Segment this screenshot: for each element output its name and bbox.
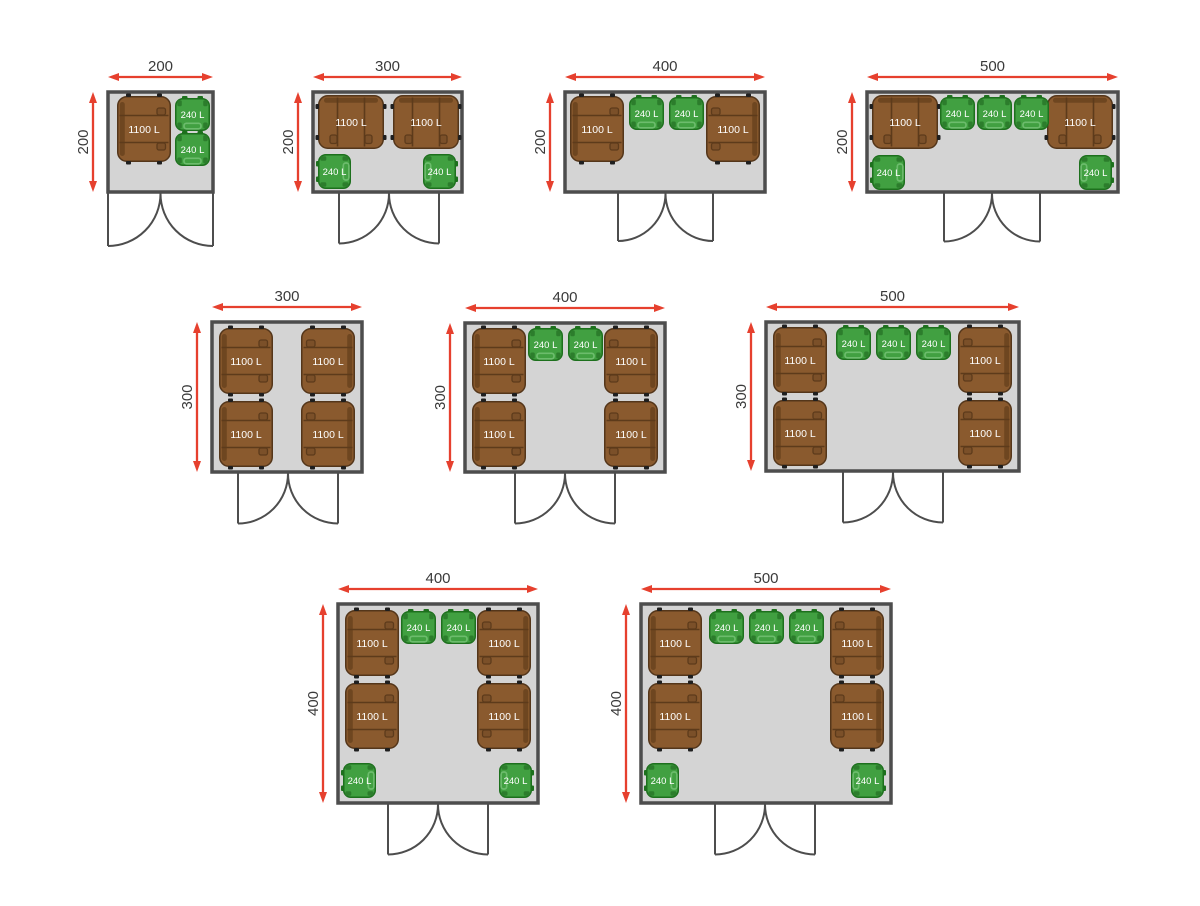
double-door <box>108 194 213 247</box>
svg-text:1100 L: 1100 L <box>1064 117 1095 129</box>
svg-text:240 L: 240 L <box>407 623 431 634</box>
bin-240l: 240 L <box>917 325 951 359</box>
svg-text:240 L: 240 L <box>842 339 866 350</box>
svg-text:1100 L: 1100 L <box>410 117 441 129</box>
bin-240l: 240 L <box>500 764 534 798</box>
bin-240l: 240 L <box>1015 95 1049 129</box>
svg-text:1100 L: 1100 L <box>312 356 343 368</box>
bin-240l: 240 L <box>978 95 1012 129</box>
svg-text:1100 L: 1100 L <box>483 429 514 441</box>
layout-400x400: 1100 L 1100 L 1100 L <box>305 570 538 855</box>
layout-200x200: 1100 L 240 L 240 L 200 <box>75 58 213 246</box>
svg-text:1100 L: 1100 L <box>356 638 387 650</box>
width-label: 300 <box>375 58 400 75</box>
bin-240l: 240 L <box>569 326 603 360</box>
container-1100l: 1100 L <box>478 608 531 679</box>
double-door <box>618 194 713 242</box>
bin-240l: 240 L <box>941 95 975 129</box>
svg-text:1100 L: 1100 L <box>335 117 366 129</box>
container-1100l: 1100 L <box>316 96 387 149</box>
container-1100l: 1100 L <box>605 326 658 397</box>
container-1100l: 1100 L <box>774 398 827 469</box>
container-1100l: 1100 L <box>473 326 526 397</box>
svg-text:240 L: 240 L <box>856 776 880 787</box>
svg-text:1100 L: 1100 L <box>841 638 872 650</box>
svg-text:240 L: 240 L <box>882 339 906 350</box>
svg-text:1100 L: 1100 L <box>717 124 748 136</box>
container-1100l: 1100 L <box>649 608 702 679</box>
container-1100l: 1100 L <box>959 325 1012 396</box>
double-door <box>388 805 488 855</box>
height-label: 200 <box>532 129 549 154</box>
container-1100l: 1100 L <box>220 399 273 470</box>
bin-240l: 240 L <box>176 96 210 130</box>
bin-240l: 240 L <box>852 764 886 798</box>
svg-text:1100 L: 1100 L <box>969 355 1000 367</box>
bin-shelter-layouts-diagram: 1100 L 240 L 240 L 200 <box>0 0 1200 906</box>
bin-240l: 240 L <box>424 155 458 189</box>
layout-500x200: 1100 L 1100 L 240 L <box>834 58 1118 242</box>
container-1100l: 1100 L <box>707 94 760 165</box>
container-1100l: 1100 L <box>302 326 355 397</box>
height-label: 200 <box>280 129 297 154</box>
svg-text:1100 L: 1100 L <box>488 638 519 650</box>
width-label: 300 <box>274 288 299 305</box>
svg-text:240 L: 240 L <box>675 109 699 120</box>
width-label: 400 <box>425 570 450 587</box>
bin-240l: 240 L <box>176 131 210 165</box>
container-1100l: 1100 L <box>571 94 624 165</box>
height-label: 200 <box>75 129 92 154</box>
svg-text:240 L: 240 L <box>635 109 659 120</box>
svg-text:1100 L: 1100 L <box>128 124 159 136</box>
svg-text:1100 L: 1100 L <box>784 428 815 440</box>
svg-text:1100 L: 1100 L <box>581 124 612 136</box>
container-1100l: 1100 L <box>391 96 462 149</box>
svg-text:1100 L: 1100 L <box>889 117 920 129</box>
width-label: 400 <box>652 58 677 75</box>
container-1100l: 1100 L <box>649 681 702 752</box>
double-door <box>339 194 439 244</box>
svg-text:1100 L: 1100 L <box>230 356 261 368</box>
double-door <box>515 474 615 524</box>
svg-text:1100 L: 1100 L <box>615 429 646 441</box>
svg-text:1100 L: 1100 L <box>312 429 343 441</box>
container-1100l: 1100 L <box>605 399 658 470</box>
svg-text:240 L: 240 L <box>922 339 946 350</box>
svg-text:1100 L: 1100 L <box>488 711 519 723</box>
svg-text:240 L: 240 L <box>715 623 739 634</box>
height-label: 200 <box>834 129 851 154</box>
svg-text:240 L: 240 L <box>534 340 558 351</box>
svg-text:1100 L: 1100 L <box>483 356 514 368</box>
bin-240l: 240 L <box>402 609 436 643</box>
container-1100l: 1100 L <box>959 398 1012 469</box>
height-label: 400 <box>305 691 322 716</box>
height-label: 300 <box>432 385 449 410</box>
svg-text:240 L: 240 L <box>946 109 970 120</box>
svg-text:240 L: 240 L <box>755 623 779 634</box>
svg-text:1100 L: 1100 L <box>615 356 646 368</box>
svg-text:240 L: 240 L <box>1084 168 1108 179</box>
bin-240l: 240 L <box>877 325 911 359</box>
bin-240l: 240 L <box>710 609 744 643</box>
container-1100l: 1100 L <box>302 399 355 470</box>
layout-300x300: 1100 L 1100 L 1100 L <box>179 288 362 524</box>
container-1100l: 1100 L <box>346 681 399 752</box>
svg-text:240 L: 240 L <box>181 110 205 121</box>
double-door <box>944 194 1040 242</box>
container-1100l: 1100 L <box>831 608 884 679</box>
bin-240l: 240 L <box>837 325 871 359</box>
container-1100l: 1100 L <box>473 399 526 470</box>
bin-240l: 240 L <box>316 155 350 189</box>
container-1100l: 1100 L <box>346 608 399 679</box>
svg-text:1100 L: 1100 L <box>969 428 1000 440</box>
svg-text:1100 L: 1100 L <box>784 355 815 367</box>
double-door <box>238 474 338 524</box>
svg-text:240 L: 240 L <box>504 776 528 787</box>
svg-text:240 L: 240 L <box>428 167 452 178</box>
height-label: 300 <box>733 384 750 409</box>
svg-text:1100 L: 1100 L <box>230 429 261 441</box>
svg-text:1100 L: 1100 L <box>659 711 690 723</box>
layout-500x400: 1100 L 1100 L 1100 L <box>608 570 891 855</box>
svg-text:240 L: 240 L <box>348 776 372 787</box>
svg-text:240 L: 240 L <box>795 623 819 634</box>
width-label: 500 <box>880 288 905 305</box>
container-1100l: 1100 L <box>831 681 884 752</box>
container-1100l: 1100 L <box>1045 96 1116 149</box>
svg-text:240 L: 240 L <box>181 145 205 156</box>
svg-text:240 L: 240 L <box>574 340 598 351</box>
width-label: 200 <box>148 58 173 75</box>
svg-text:240 L: 240 L <box>877 168 901 179</box>
container-1100l: 1100 L <box>220 326 273 397</box>
container-1100l: 1100 L <box>478 681 531 752</box>
svg-text:1100 L: 1100 L <box>356 711 387 723</box>
layout-400x300: 1100 L 1100 L 1100 L <box>432 289 665 524</box>
container-1100l: 1100 L <box>118 94 171 165</box>
svg-text:240 L: 240 L <box>1020 109 1044 120</box>
svg-text:240 L: 240 L <box>651 776 675 787</box>
layout-400x200: 1100 L 1100 L 240 L <box>532 58 765 241</box>
width-label: 500 <box>753 570 778 587</box>
svg-text:240 L: 240 L <box>323 167 347 178</box>
svg-text:240 L: 240 L <box>447 623 471 634</box>
bin-240l: 240 L <box>1080 156 1114 190</box>
bin-240l: 240 L <box>630 95 664 129</box>
container-1100l: 1100 L <box>870 96 941 149</box>
bin-240l: 240 L <box>790 609 824 643</box>
bin-240l: 240 L <box>341 764 375 798</box>
double-door <box>843 473 943 523</box>
container-1100l: 1100 L <box>774 325 827 396</box>
height-label: 400 <box>608 691 625 716</box>
double-door <box>715 805 815 855</box>
layout-500x300: 1100 L 1100 L 1100 L <box>733 288 1019 523</box>
bin-240l: 240 L <box>529 326 563 360</box>
bin-240l: 240 L <box>644 764 678 798</box>
bin-240l: 240 L <box>870 156 904 190</box>
width-label: 400 <box>552 289 577 306</box>
svg-text:1100 L: 1100 L <box>659 638 690 650</box>
svg-text:240 L: 240 L <box>983 109 1007 120</box>
bin-240l: 240 L <box>442 609 476 643</box>
bin-240l: 240 L <box>670 95 704 129</box>
height-label: 300 <box>179 384 196 409</box>
floor-plans-svg: 1100 L 240 L 240 L 200 <box>0 0 1200 906</box>
bin-240l: 240 L <box>750 609 784 643</box>
width-label: 500 <box>980 58 1005 75</box>
layout-300x200: 1100 L 1100 L 240 L <box>280 58 462 244</box>
svg-text:1100 L: 1100 L <box>841 711 872 723</box>
